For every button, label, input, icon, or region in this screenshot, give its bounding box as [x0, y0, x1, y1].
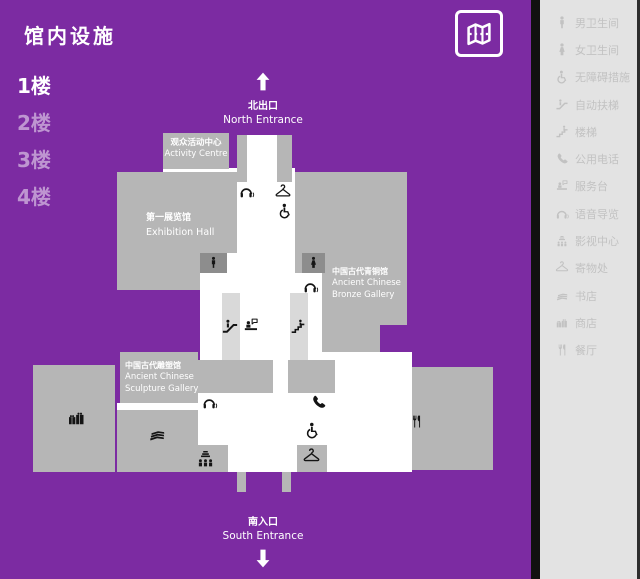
escalator-icon: [555, 98, 569, 112]
activity-centre-label: 观众活动中心 Activity Centre: [163, 137, 229, 161]
sidebar-item-label: 餐厅: [575, 342, 597, 358]
sidebar-item-label: 书店: [575, 288, 597, 304]
sidebar-item-cloakroom[interactable]: 寄物处: [540, 255, 640, 282]
audio-guide-icon: [238, 184, 255, 200]
facilities-sidebar: 男卫生间 女卫生间 无障碍措施 自动扶梯 楼梯 公用电话: [540, 0, 640, 579]
wheelchair-icon: [304, 421, 321, 440]
books-icon: [555, 289, 569, 303]
south-entrance-en: South Entrance: [187, 530, 339, 542]
stairs-icon: [555, 125, 569, 139]
sidebar-item-label: 自动扶梯: [575, 97, 619, 113]
sidebar-divider: [531, 0, 540, 579]
stairs-icon: [290, 318, 306, 336]
block-notch: [380, 325, 407, 352]
corridor: [327, 445, 412, 472]
cinema-icon: [555, 234, 569, 248]
audio-guide-icon: [302, 279, 319, 295]
restaurant-icon: [555, 343, 569, 357]
sidebar-item-label: 女卫生间: [575, 42, 619, 58]
north-entrance-cn: 北出口: [212, 97, 314, 112]
female-icon: [555, 43, 569, 57]
sidebar-item-womens-restroom[interactable]: 女卫生间: [540, 36, 640, 63]
north-entrance: 北出口 North Entrance: [212, 70, 314, 126]
sidebar-item-bookstore[interactable]: 书店: [540, 282, 640, 309]
corridor: [322, 352, 412, 372]
sidebar-item-stairs[interactable]: 楼梯: [540, 118, 640, 145]
shop-icon: [66, 408, 87, 428]
sidebar-item-audio-guide[interactable]: 语音导览: [540, 200, 640, 227]
north-entrance-en: North Entrance: [212, 114, 314, 126]
sculpture-gallery-label: 中国古代雕塑馆 Ancient Chinese Sculpture Galler…: [125, 360, 201, 395]
mid-band-left: [198, 360, 273, 393]
service-desk-icon: [555, 179, 569, 193]
sidebar-item-restaurant[interactable]: 餐厅: [540, 337, 640, 364]
service-desk-icon: [242, 317, 260, 334]
corridor: [117, 403, 198, 410]
floor-selector: 1楼 2楼 3楼 4楼: [17, 68, 51, 216]
floor-tab-2[interactable]: 2楼: [17, 105, 51, 142]
south-entrance-cn: 南入口: [187, 513, 339, 528]
cinema-icon: [195, 448, 216, 469]
sidebar-item-shop[interactable]: 商店: [540, 309, 640, 336]
exhibition-hall-block: [117, 253, 200, 290]
restaurant-block: [412, 367, 493, 470]
exhibition-hall-label: 第一展览馆 Exhibition Hall: [146, 212, 214, 239]
audio-guide-icon: [555, 207, 569, 221]
wheelchair-icon: [555, 70, 569, 84]
escalator-icon: [220, 318, 240, 336]
north-pillar-left: [237, 135, 247, 182]
sidebar-item-label: 影视中心: [575, 233, 619, 249]
sidebar-item-escalator[interactable]: 自动扶梯: [540, 91, 640, 118]
sidebar-item-cinema[interactable]: 影视中心: [540, 227, 640, 254]
corridor: [228, 445, 297, 472]
male-icon: [555, 16, 569, 30]
bookstore-icon: [146, 425, 168, 444]
sidebar-item-label: 男卫生间: [575, 15, 619, 31]
sidebar-item-label: 服务台: [575, 178, 608, 194]
page-title: 馆内设施: [24, 20, 116, 49]
sidebar-item-public-phone[interactable]: 公用电话: [540, 145, 640, 172]
cloakroom-icon: [274, 184, 292, 201]
facilities-list: 男卫生间 女卫生间 无障碍措施 自动扶梯 楼梯 公用电话: [540, 0, 640, 364]
south-pillar-left: [237, 472, 246, 492]
bronze-gallery-label: 中国古代青铜馆 Ancient Chinese Bronze Gallery: [332, 266, 406, 301]
phone-icon: [555, 152, 569, 166]
arrow-up-icon: [252, 70, 274, 94]
sidebar-item-mens-restroom[interactable]: 男卫生间: [540, 9, 640, 36]
floor-tab-4[interactable]: 4楼: [17, 179, 51, 216]
floor-tab-1[interactable]: 1楼: [17, 68, 51, 105]
female-icon: [307, 255, 320, 271]
male-icon: [207, 255, 220, 271]
sidebar-item-label: 楼梯: [575, 124, 597, 140]
south-entrance: 南入口 South Entrance: [187, 513, 339, 570]
restaurant-icon: [409, 412, 424, 431]
floor-tab-3[interactable]: 3楼: [17, 142, 51, 179]
wheelchair-icon: [277, 202, 293, 220]
sidebar-item-label: 语音导览: [575, 206, 619, 222]
sidebar-item-label: 寄物处: [575, 260, 608, 276]
south-pillar-right: [282, 472, 291, 492]
hanger-icon: [555, 261, 569, 275]
map-icon: [462, 18, 496, 50]
sidebar-item-label: 公用电话: [575, 151, 619, 167]
sidebar-item-label: 无障碍措施: [575, 69, 630, 85]
north-pillar-right: [277, 135, 292, 182]
gift-icon: [555, 316, 569, 330]
sidebar-item-label: 商店: [575, 315, 597, 331]
museum-facilities-screen: 观众活动中心 Activity Centre 第一展览馆 Exhibition …: [0, 0, 640, 579]
audio-guide-icon: [201, 395, 218, 411]
sidebar-item-service-desk[interactable]: 服务台: [540, 173, 640, 200]
public-phone-icon: [310, 394, 327, 411]
sidebar-item-accessibility[interactable]: 无障碍措施: [540, 64, 640, 91]
map-button[interactable]: [455, 10, 503, 57]
cloakroom-icon: [302, 448, 321, 466]
mid-band-right: [288, 360, 335, 393]
arrow-down-icon: [252, 546, 274, 570]
